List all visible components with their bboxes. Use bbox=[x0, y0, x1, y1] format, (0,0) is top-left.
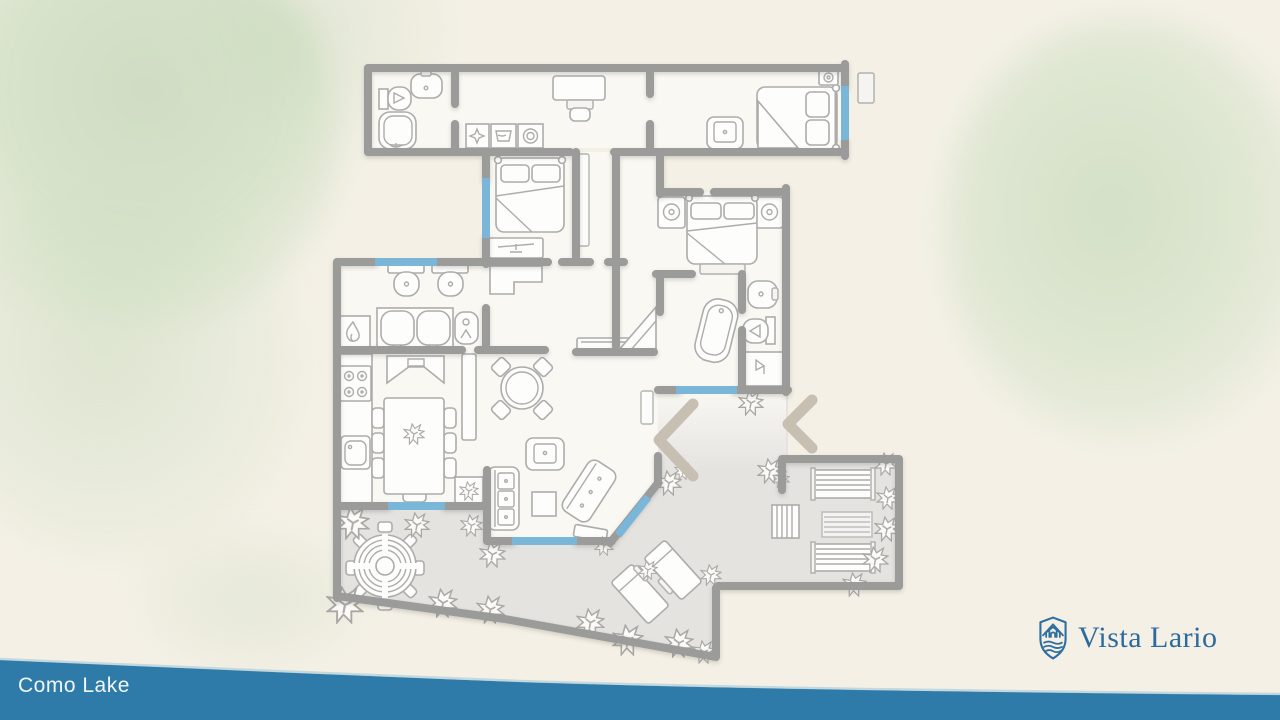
slide-canvas: Como Lake Vista Lario bbox=[0, 0, 1280, 720]
lake-water bbox=[0, 659, 1280, 720]
washing-machine-icon bbox=[518, 124, 543, 148]
nightstand-lamp-icon bbox=[819, 70, 838, 85]
shower-basin-icon bbox=[379, 112, 416, 149]
armchair-icon-2 bbox=[526, 438, 564, 470]
kitchen-sink-icon bbox=[341, 436, 370, 469]
double-vanity-icon bbox=[377, 308, 453, 348]
stove-icon bbox=[340, 366, 371, 401]
striped-lounger-2 bbox=[822, 512, 872, 537]
speaker-nightstand-left bbox=[658, 197, 685, 228]
brand-name: Vista Lario bbox=[1078, 621, 1218, 655]
double-bed-vertical bbox=[495, 157, 566, 232]
striped-lounger-3 bbox=[811, 542, 875, 573]
location-label: Como Lake bbox=[18, 674, 130, 698]
toilet-icon-2 bbox=[743, 317, 775, 344]
double-bed-horizontal bbox=[757, 85, 839, 152]
brand-logo: Vista Lario bbox=[1038, 616, 1218, 660]
planter-box bbox=[455, 477, 483, 505]
floor-plan-graphic bbox=[0, 0, 1280, 720]
double-bed-vertical-2 bbox=[686, 195, 758, 264]
shower-icon bbox=[744, 352, 784, 386]
toilet-icon bbox=[379, 87, 411, 110]
speaker-nightstand-right bbox=[756, 197, 783, 228]
coffee-table bbox=[532, 492, 556, 516]
striped-mat bbox=[772, 505, 799, 538]
shield-house-waves-icon bbox=[1038, 616, 1068, 660]
detergent-icon bbox=[466, 124, 489, 148]
dresser-tv-icon bbox=[489, 238, 543, 258]
bed-bench bbox=[700, 264, 745, 274]
door-leaf-2 bbox=[641, 391, 653, 424]
sink-icon-2 bbox=[748, 281, 778, 308]
tall-cabinet bbox=[462, 354, 476, 440]
sofa-icon bbox=[488, 467, 519, 530]
washtub-icon bbox=[491, 124, 516, 148]
exterior-unit bbox=[858, 73, 874, 103]
armchair-icon bbox=[707, 117, 743, 149]
dining-table-icon bbox=[372, 398, 456, 502]
striped-lounger-1 bbox=[811, 468, 875, 500]
toilet-icon-3 bbox=[455, 312, 478, 344]
sink-icon bbox=[411, 71, 442, 98]
